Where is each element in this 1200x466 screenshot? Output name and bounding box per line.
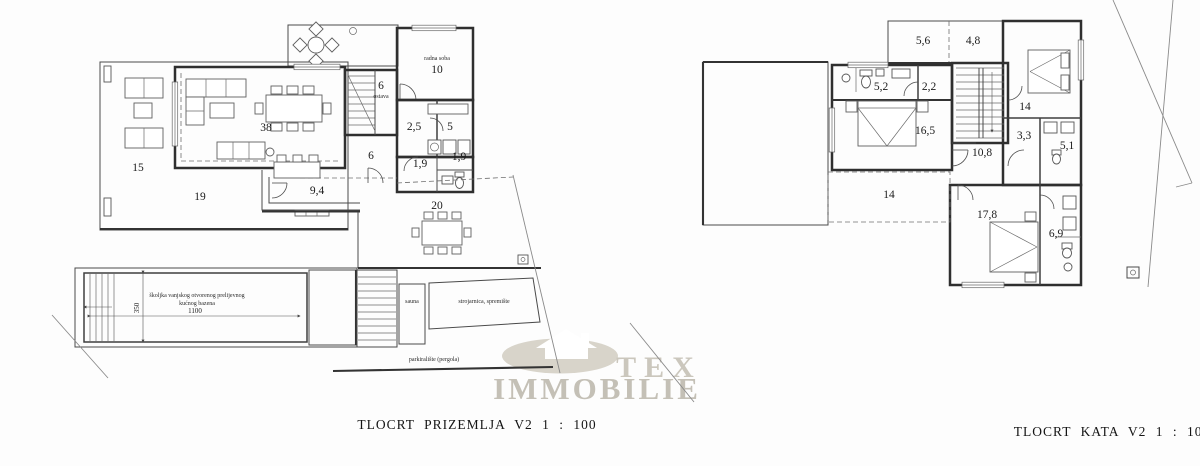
room-label-bedroom-178: 17,8 [977, 209, 997, 221]
ground-study [397, 25, 473, 100]
pool-length-dim: 1100 [188, 307, 202, 315]
room-note-machine-room: strojarnica, spremište [458, 299, 510, 305]
ground-pool [75, 268, 357, 347]
ground-top-terrace [288, 22, 398, 68]
upper-top-terrace [888, 21, 1003, 63]
pool-note-line1: školjka vanjskog otvorenog prelijevnog [149, 293, 244, 299]
room-label-terrace-20: 20 [431, 200, 443, 212]
upper-flat-roof [703, 62, 828, 225]
room-label-pantry: 2,5 [407, 121, 422, 133]
note-parking-pergola: parkiralište (pergola) [409, 356, 459, 363]
room-label-bath-51: 5,1 [1060, 140, 1075, 152]
room-label-terrace-15: 15 [132, 162, 144, 174]
room-note-sauna: sauna [405, 299, 419, 305]
room-label-hall-108: 10,8 [972, 147, 992, 159]
upper-staircase [956, 68, 1004, 138]
room-label-study-10: 10 [431, 64, 443, 76]
room-label-kitchen: 5 [447, 121, 453, 133]
room-label-wc-right: 1,9 [452, 151, 467, 163]
watermark-text-2: IMMOBILIE [493, 371, 701, 406]
upper-site-boundaries [1113, 0, 1192, 287]
room-label-bedroom-165: 16,5 [915, 125, 935, 137]
room-label-closet-22: 2,2 [922, 81, 937, 93]
room-label-porch: 9,4 [310, 185, 325, 197]
room-note-radna-soba: radna soba [424, 56, 450, 62]
caption-upper-floor: TLOCRT KATA V2 1 : 100 [1014, 424, 1200, 439]
room-label-landing-33: 3,3 [1017, 130, 1032, 142]
ground-staircase [345, 70, 397, 135]
room-label-living-38: 38 [260, 122, 272, 134]
room-label-bath-69: 6,9 [1049, 228, 1064, 240]
room-label-stair-6: 6 [378, 80, 384, 92]
room-label-terrace-48: 4,8 [966, 35, 981, 47]
caption-ground-floor: TLOCRT PRIZEMLJA V2 1 : 100 [357, 417, 596, 432]
room-note-ostava: ostava [373, 94, 389, 100]
room-label-terrace-19: 19 [194, 191, 206, 203]
room-label-wc-left: 1,9 [413, 158, 428, 170]
ground-living-room [172, 64, 345, 168]
room-label-bedroom-14: 14 [1019, 101, 1031, 113]
room-label-terrace-56: 5,6 [916, 35, 931, 47]
room-label-roof-terrace-14: 14 [883, 189, 895, 201]
watermark-house-body [545, 346, 588, 359]
upper-floor-plan: 5,6 4,8 5,2 2,2 16,5 14 3,3 10,8 5,1 14 … [703, 0, 1192, 288]
room-label-bath-52: 5,2 [874, 81, 889, 93]
floor-plan-sheet: TEX IMMOBILIE [0, 0, 1200, 466]
ground-terrace-20 [358, 177, 541, 268]
ground-outbuildings [357, 270, 540, 347]
room-label-hall-6: 6 [368, 150, 374, 162]
pool-width-dim: 350 [133, 302, 141, 313]
ground-terrace-loungers [125, 78, 163, 148]
